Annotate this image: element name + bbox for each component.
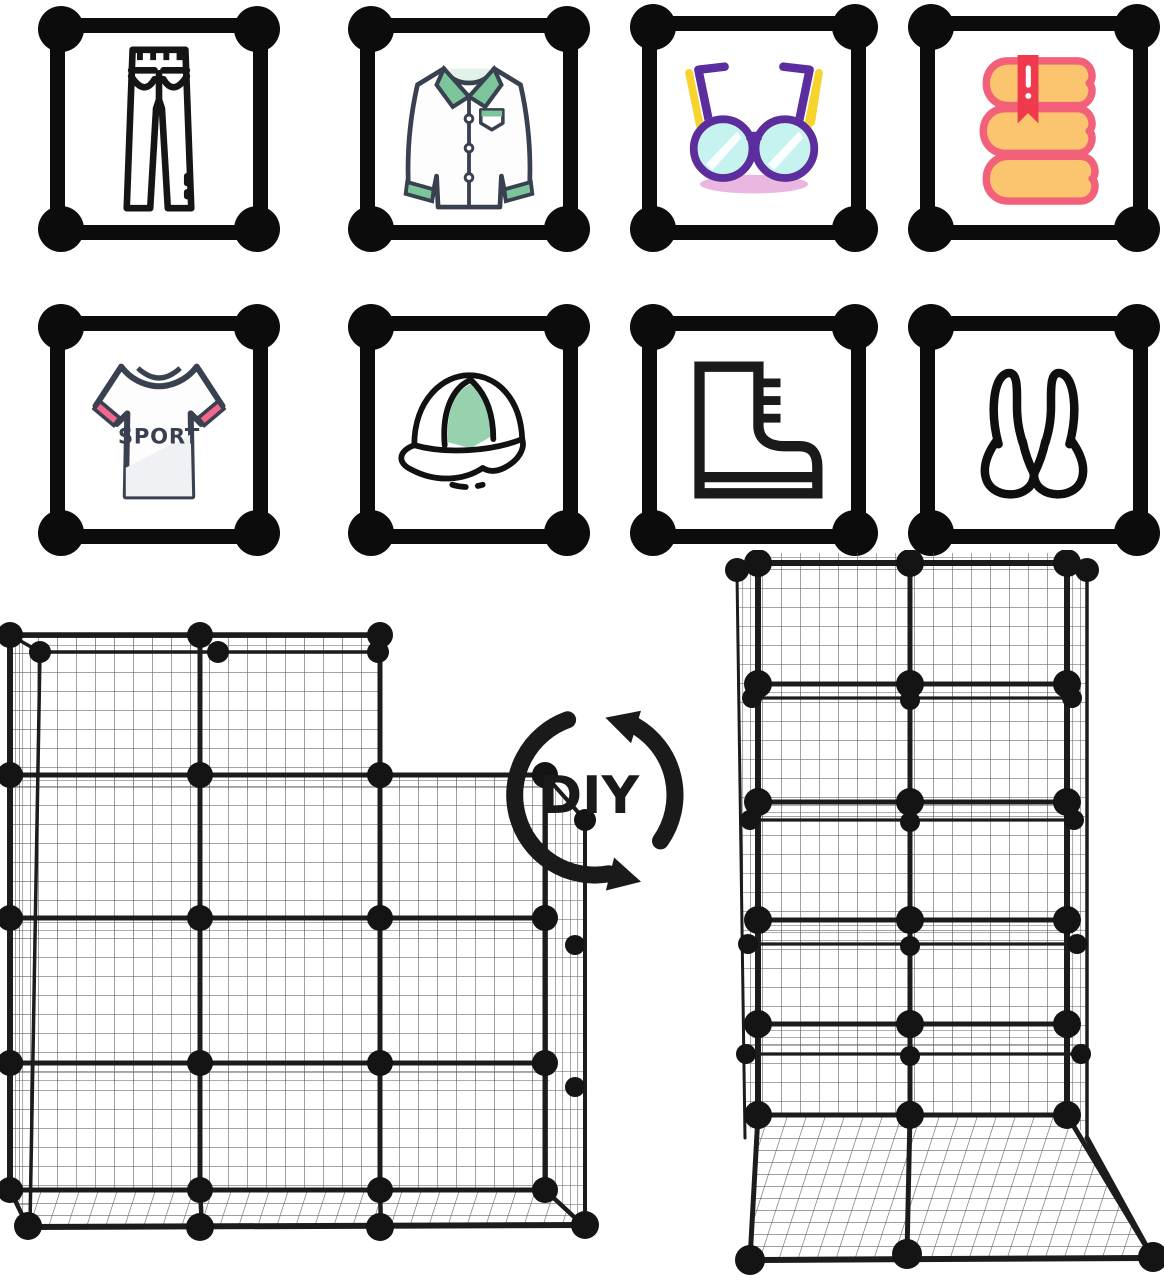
corner-ball bbox=[908, 206, 954, 252]
corner-ball bbox=[38, 510, 84, 556]
shirt-icon bbox=[388, 48, 550, 210]
corner-ball bbox=[1114, 304, 1160, 350]
corner-ball bbox=[348, 6, 394, 52]
corner-ball bbox=[630, 304, 676, 350]
sport-tshirt-icon: SPORT bbox=[76, 347, 242, 513]
corner-ball bbox=[908, 304, 954, 350]
boot-icon bbox=[673, 349, 835, 511]
module-frame-bra bbox=[920, 316, 1148, 544]
corner-ball bbox=[1114, 4, 1160, 50]
corner-ball bbox=[908, 4, 954, 50]
module-frame-glasses bbox=[642, 16, 866, 240]
corner-ball bbox=[630, 510, 676, 556]
corner-ball bbox=[544, 206, 590, 252]
corner-ball bbox=[544, 304, 590, 350]
corner-ball bbox=[1114, 206, 1160, 252]
diy-label: DIY bbox=[539, 766, 641, 826]
module-frame-jeans bbox=[50, 18, 268, 240]
corner-ball bbox=[832, 206, 878, 252]
corner-ball bbox=[38, 206, 84, 252]
module-frame-shirt bbox=[360, 18, 578, 240]
module-frame-books bbox=[920, 16, 1148, 240]
corner-ball bbox=[544, 6, 590, 52]
cap-icon bbox=[385, 354, 553, 506]
corner-ball bbox=[348, 510, 394, 556]
jeans-icon bbox=[111, 41, 207, 217]
module-frame-cap bbox=[360, 316, 578, 544]
wire-cube-rack-tower bbox=[705, 550, 1164, 1280]
corner-ball bbox=[544, 510, 590, 556]
module-frame-sport-tshirt: SPORT bbox=[50, 316, 268, 544]
books-icon bbox=[952, 46, 1116, 210]
glasses-icon bbox=[669, 51, 839, 206]
corner-ball bbox=[234, 206, 280, 252]
corner-ball bbox=[630, 4, 676, 50]
corner-ball bbox=[234, 6, 280, 52]
bra-icon bbox=[956, 359, 1112, 501]
corner-ball bbox=[832, 304, 878, 350]
corner-ball bbox=[38, 304, 84, 350]
corner-ball bbox=[234, 510, 280, 556]
corner-ball bbox=[348, 206, 394, 252]
product-image-canvas: SPORT bbox=[0, 0, 1164, 1280]
corner-ball bbox=[348, 304, 394, 350]
diy-rotate-badge: DIY bbox=[498, 670, 698, 905]
corner-ball bbox=[38, 6, 84, 52]
corner-ball bbox=[234, 304, 280, 350]
corner-ball bbox=[832, 4, 878, 50]
module-frame-boot bbox=[642, 316, 866, 544]
sport-label: SPORT bbox=[118, 424, 200, 449]
corner-ball bbox=[630, 206, 676, 252]
